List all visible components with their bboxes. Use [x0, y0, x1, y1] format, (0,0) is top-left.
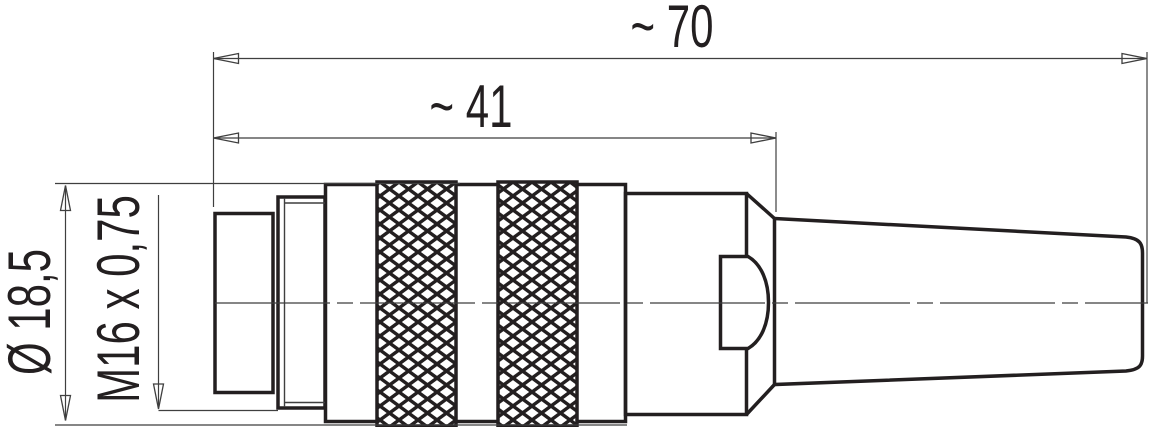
diameter-label: Ø 18,5 — [0, 172, 60, 427]
overall-length-label: ~ 70 — [532, 0, 812, 57]
knurl-band-rear — [498, 182, 577, 426]
rear-chamfers — [747, 194, 775, 415]
thread-label: M16 x 0,75 — [89, 159, 149, 427]
technical-drawing-canvas: ~ 70 ~ 41 Ø 18,5 M16 x 0,75 — [0, 0, 1151, 427]
front-length-label: ~ 41 — [331, 77, 611, 137]
knurl-band-front — [377, 182, 456, 426]
rear-body — [626, 194, 747, 415]
connector-line-art — [0, 0, 1151, 427]
strain-relief-cone — [775, 219, 1143, 385]
